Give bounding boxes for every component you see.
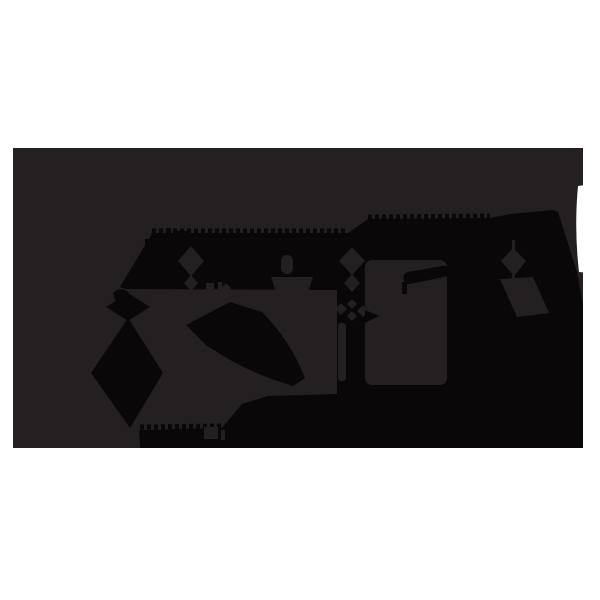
silhouette-figure [0,0,600,600]
bottom-tick-2 [221,430,225,440]
edge-dots [145,239,154,245]
handle-pill-cutout [281,255,293,274]
white-edge-notch [576,183,600,274]
slot-cutout [338,323,346,381]
page [0,0,600,600]
bottom-tick-1 [204,427,218,439]
slanted-bar-tick [402,282,407,294]
handle-cap-cutout [271,277,313,292]
small-mark-1 [206,283,214,294]
